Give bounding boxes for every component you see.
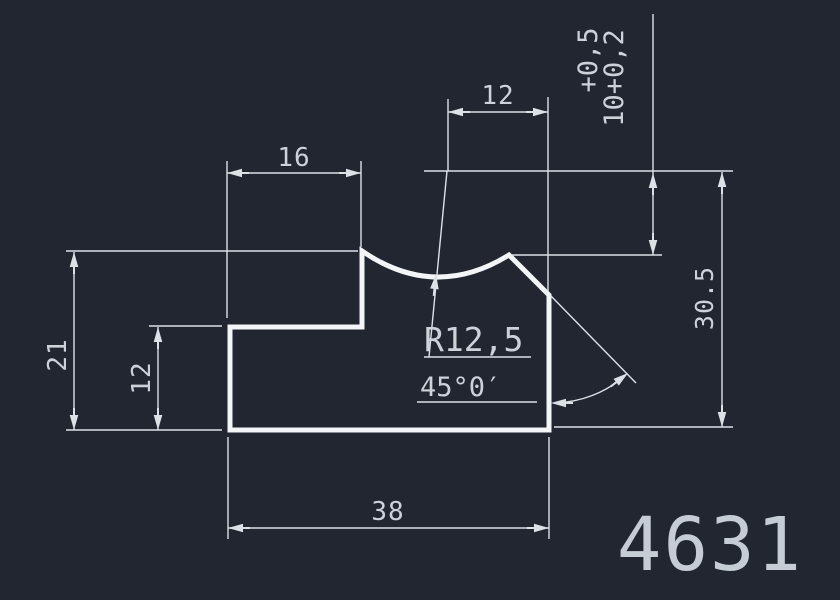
arrow-icon: [70, 252, 79, 274]
cad-drawing-canvas: 16 12 21 12 38: [0, 0, 840, 600]
dim-left-height-label: 21: [43, 338, 73, 371]
dim-bottom-width-label: 38: [371, 497, 404, 527]
arrow-icon: [154, 408, 163, 430]
part-number-label: 4631: [617, 502, 803, 588]
arrow-icon: [718, 405, 727, 427]
tolerance-value-label: 10+0,2: [599, 29, 630, 127]
arrow-icon: [551, 399, 573, 408]
dimension-left-height: 21: [43, 251, 358, 430]
arrow-icon: [526, 108, 548, 117]
arrow-icon: [608, 370, 631, 390]
cad-drawing: 16 12 21 12 38: [0, 0, 840, 600]
dim-top-width-label: 16: [277, 143, 310, 173]
dimension-left-step-height: 12: [127, 326, 222, 430]
arrow-icon: [154, 327, 163, 349]
arrow-icon: [649, 233, 658, 255]
radius-label: R12,5: [424, 320, 523, 359]
arrow-icon: [339, 169, 361, 178]
chamfer-extension-line: [551, 296, 636, 383]
dim-upper-notch-label: 12: [481, 81, 514, 111]
arrow-icon: [70, 408, 79, 430]
radius-callout: R12,5: [424, 171, 531, 359]
dim-left-step-label: 12: [127, 361, 157, 394]
dimension-bottom-width: 38: [228, 437, 549, 539]
dim-right-height-label: 30.5: [690, 266, 719, 330]
dimension-top-width: 16: [227, 143, 361, 318]
arrow-icon: [228, 524, 250, 533]
arrow-icon: [718, 172, 727, 194]
arrow-icon: [448, 108, 470, 117]
arrow-icon: [527, 524, 549, 533]
dimension-tolerance-height: +0,5 10+0,2: [573, 14, 657, 255]
angle-label: 45°0′: [420, 372, 501, 403]
arrow-icon: [227, 169, 249, 178]
dimension-right-height: 30.5: [690, 172, 726, 427]
arrow-icon: [649, 173, 658, 195]
